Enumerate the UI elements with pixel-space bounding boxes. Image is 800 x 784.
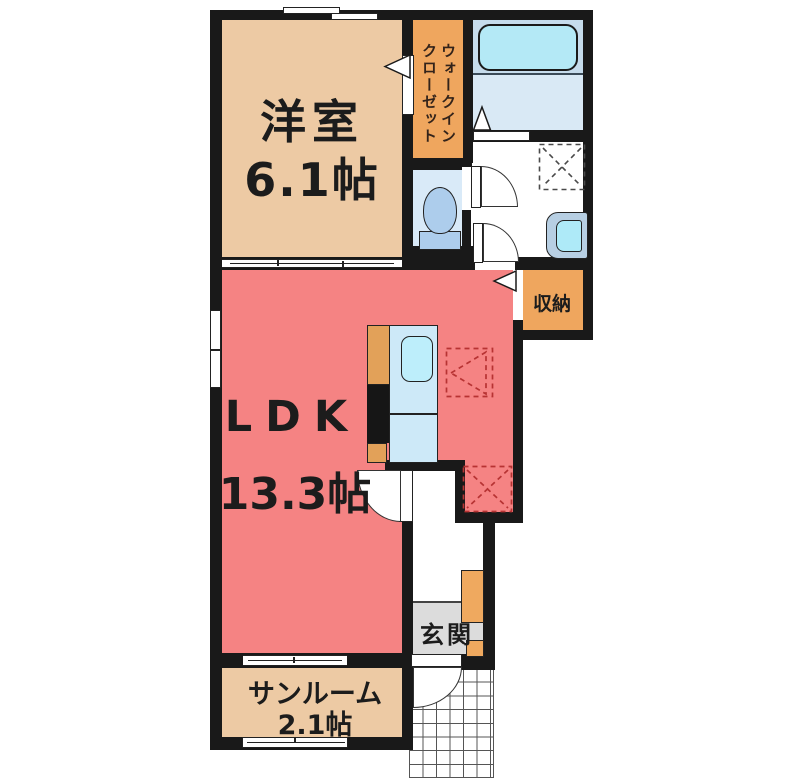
room-bath-floor (466, 75, 588, 135)
kitchen-sink (401, 336, 433, 382)
entrance-door-leaf (411, 654, 462, 667)
wic-label-line1: ウォークイン (438, 26, 457, 162)
slider-tick (277, 260, 279, 266)
bathtub (478, 24, 578, 71)
washbasin-sink (556, 220, 582, 252)
toilet-door-leaf (471, 166, 481, 208)
wall-pocket-bottom (455, 512, 523, 523)
ldk-hall-door-leaf (399, 470, 413, 522)
toilet-bowl (423, 187, 457, 234)
floor-plan: 洋室 6.1帖 ウォークイン クローゼット 収納 LDK 13.3帖 サンルーム… (0, 0, 800, 784)
slider-midline (248, 660, 342, 661)
window-midline (247, 742, 345, 743)
slider-tick (342, 261, 344, 267)
sliding-door-yoshitsu-ldk (222, 259, 402, 268)
room-ldk-pocket (458, 458, 516, 516)
window-ldk-left (210, 310, 221, 388)
washroom-door-leaf (473, 223, 483, 263)
slider-midline (230, 263, 394, 264)
slider-tick (293, 657, 295, 663)
kitchen-stove-black (367, 385, 390, 443)
wall-pocket-left (455, 460, 465, 516)
kitchen-counter-divider (389, 413, 438, 415)
wic-label: ウォークイン クローゼット (417, 26, 457, 162)
sliding-door-ldk-sunroom (243, 655, 347, 666)
storage-label: 収納 (518, 289, 586, 316)
sunroom-size-label: 2.1帖 (222, 703, 408, 742)
ldk-label: LDK (215, 392, 370, 442)
yoshitsu-label: 洋室 (212, 86, 412, 152)
ldk-size-label: 13.3帖 (205, 458, 385, 522)
kitchen-cabinet-upper (367, 325, 390, 385)
yoshitsu-size-label: 6.1帖 (212, 144, 412, 210)
wall-storage-bottom (513, 330, 593, 340)
toilet-door-opening (462, 167, 471, 210)
wic-label-line2: クローゼット (419, 26, 438, 162)
window-top-b (331, 13, 378, 20)
bath-sliding-door (473, 131, 530, 141)
window-tick (211, 349, 220, 351)
genkan-label: 玄関 (407, 615, 487, 650)
hallway-upper (409, 464, 459, 604)
